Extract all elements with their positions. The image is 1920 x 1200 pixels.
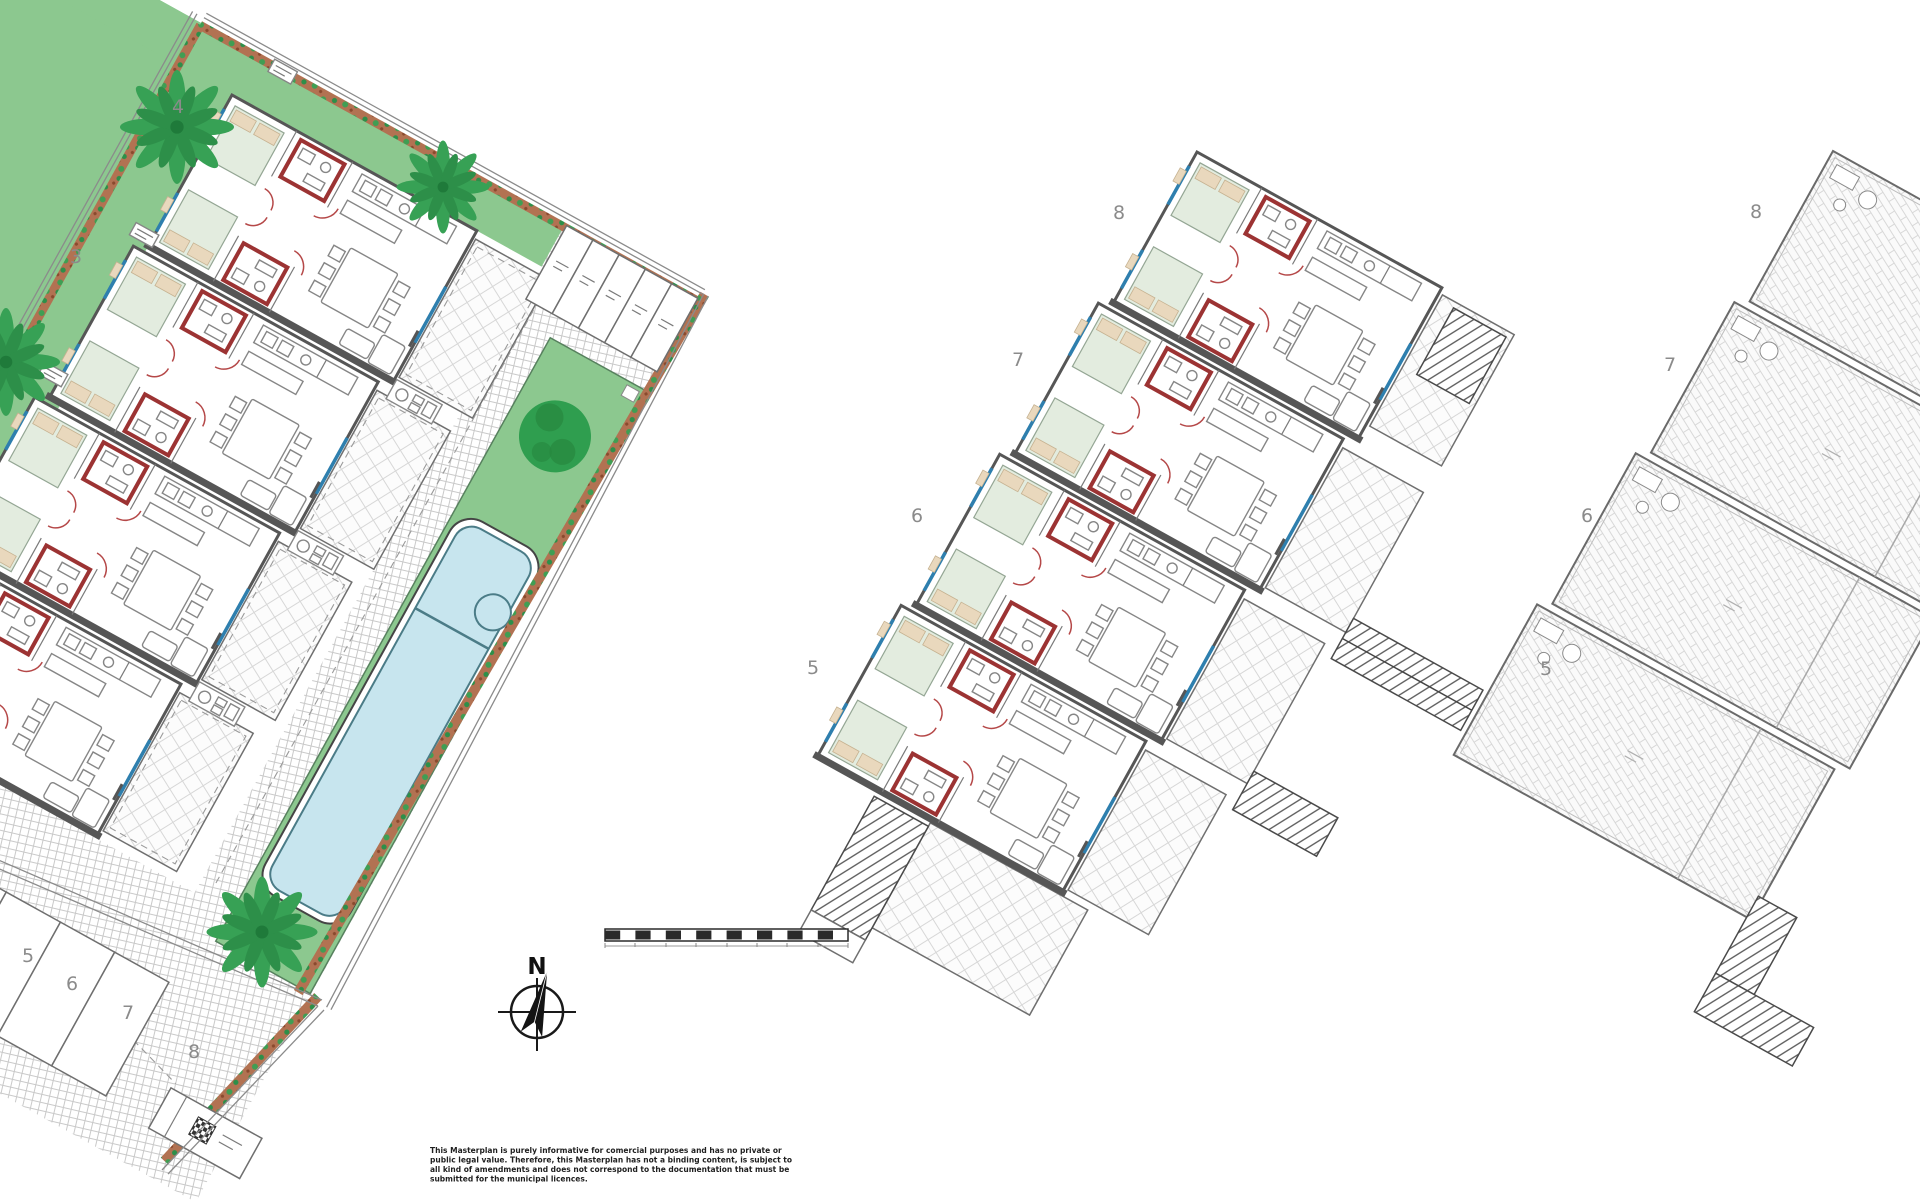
parking-label-8: 8 (188, 1041, 200, 1063)
palm-tree-icon (207, 877, 318, 988)
parking-label-5: 5 (22, 945, 34, 967)
unit-label-7: 7 (1012, 349, 1024, 371)
disclaimer: This Masterplan is purely informative fo… (430, 1146, 792, 1184)
north-arrow: N (498, 954, 576, 1051)
first-floor-plan: 8 7 6 5 (732, 130, 1644, 1166)
palm-tree-icon (120, 70, 234, 184)
disclaimer-line: submitted for the municipal licences. (430, 1175, 588, 1184)
unit-label-5: 5 (1540, 658, 1552, 680)
parking-label-6: 6 (66, 973, 78, 995)
disclaimer-line: This Masterplan is purely informative fo… (430, 1146, 782, 1155)
masterplan-drawing: 5 6 7 8 4 3 (0, 0, 1920, 1200)
unit-label-6: 6 (911, 505, 923, 527)
unit-label-3: 3 (70, 246, 82, 268)
scale-bar (605, 929, 848, 948)
masterplan-page: 5 6 7 8 4 3 (0, 0, 1920, 1200)
disclaimer-line: all kind of amendments and does not corr… (430, 1165, 789, 1174)
roof-access-stair (1694, 896, 1856, 1066)
ground-floor-plan: 5 6 7 8 4 3 (0, 0, 726, 1200)
disclaimer-line: public legal value. Therefore, this Mast… (430, 1156, 792, 1165)
unit-label-8: 8 (1750, 201, 1762, 223)
roof-plan: 8 7 6 5 (1401, 132, 1920, 1066)
unit-label-7: 7 (1664, 354, 1676, 376)
unit-label-5: 5 (807, 657, 819, 679)
unit-label-4: 4 (172, 96, 184, 118)
palm-tree-icon (397, 141, 490, 234)
north-label: N (527, 954, 546, 980)
unit-label-6: 6 (1581, 505, 1593, 527)
parking-label-7: 7 (122, 1002, 134, 1024)
unit-label-8: 8 (1113, 202, 1125, 224)
